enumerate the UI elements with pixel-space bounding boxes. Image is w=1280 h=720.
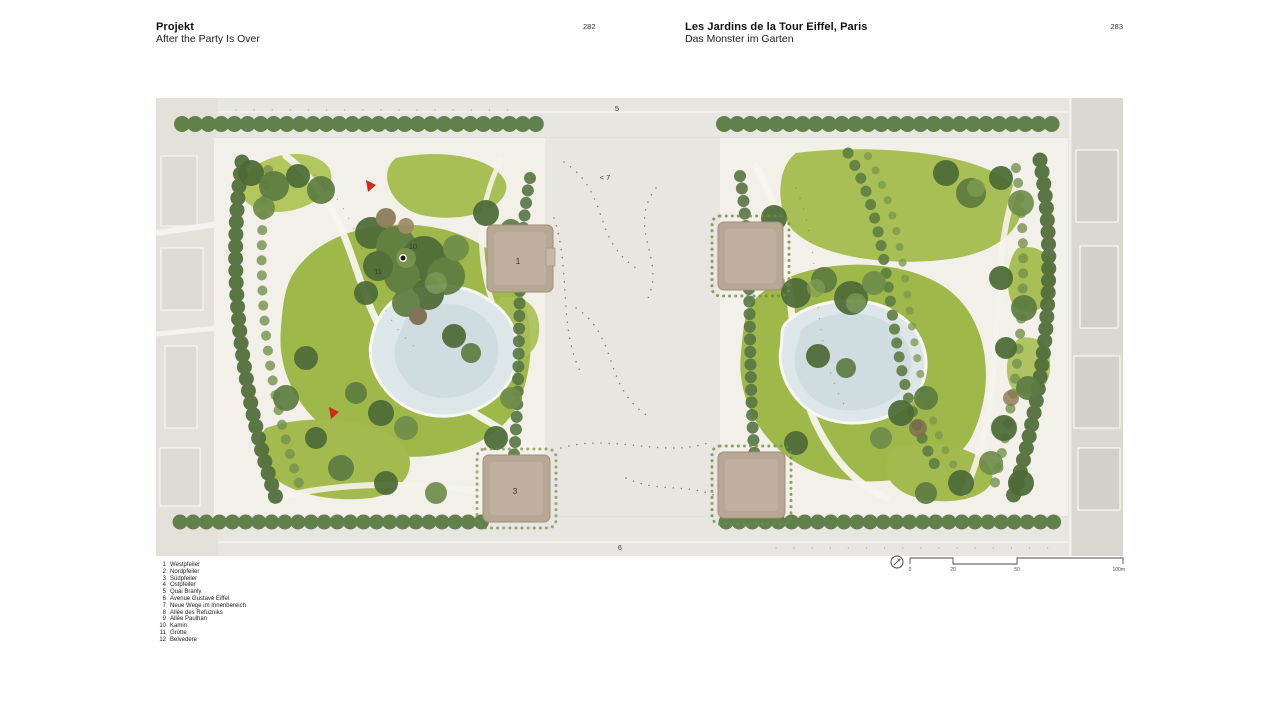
pier-west-label: 1 <box>516 256 521 266</box>
header-left: Projekt After the Party Is Over <box>156 21 260 45</box>
legend-item: 10Kamin <box>157 623 246 630</box>
legend-item: 5Quai Branly <box>157 589 246 596</box>
grotte-label: 11 <box>374 267 382 276</box>
scale-bar-line <box>910 558 1123 564</box>
plan-legend: 1Westpfeiler 2Nordpfeiler 3Südpfeiler 4O… <box>157 562 246 644</box>
scale-tick: 0 <box>909 567 912 573</box>
legend-item: 8Allée des Refuzniks <box>157 610 246 617</box>
right-page-title: Les Jardins de la Tour Eiffel, Paris <box>685 21 868 33</box>
scale-tick: 20 <box>950 567 956 573</box>
book-spread-page: Projekt After the Party Is Over 282 Les … <box>0 0 1280 720</box>
header-right: Les Jardins de la Tour Eiffel, Paris Das… <box>685 21 868 45</box>
pier-south-building: 3 <box>477 449 556 528</box>
pier-south-label: 3 <box>513 486 518 496</box>
left-page-subtitle: After the Party Is Over <box>156 33 260 45</box>
legend-item: 4Ostpfeiler <box>157 582 246 589</box>
left-page-number: 282 <box>583 22 596 31</box>
city-blocks-left <box>156 98 218 556</box>
legend-item: 2Nordpfeiler <box>157 569 246 576</box>
right-page-subtitle: Das Monster im Garten <box>685 33 868 45</box>
legend-item: 12Belvedere <box>157 637 246 644</box>
right-page-number: 283 <box>1099 22 1123 31</box>
pier-north-building <box>712 216 789 296</box>
kamin-dot-marker <box>400 255 406 261</box>
pier-east-building <box>712 446 791 524</box>
north-arrow-icon <box>891 556 903 568</box>
legend-item: 9Allée Paulhan <box>157 616 246 623</box>
site-plan-svg: 1 3 <box>156 98 1123 556</box>
legend-item: 11Grotte <box>157 630 246 637</box>
legend-item: 6Avenue Gustave Eiffel <box>157 596 246 603</box>
legend-item: 7Neue Wege im Innenbereich <box>157 603 246 610</box>
legend-item: 1Westpfeiler <box>157 562 246 569</box>
site-plan-figure: 1 3 <box>156 98 1123 556</box>
scale-tick: 100m <box>1112 567 1125 573</box>
pier-west-building: 1 <box>487 225 555 292</box>
legend-item: 3Südpfeiler <box>157 576 246 583</box>
left-page-title: Projekt <box>156 21 260 33</box>
scale-tick: 50 <box>1014 567 1020 573</box>
central-plaza <box>545 138 720 516</box>
neue-wege-label: < 7 <box>600 173 611 182</box>
kamin-label: 10 <box>409 242 417 251</box>
avenue-gustave-eiffel-label: 6 <box>618 543 622 552</box>
scale-bar: 0 20 50 100m <box>884 552 1128 574</box>
quai-branly-label: 5 <box>615 104 619 113</box>
city-blocks-right <box>1068 98 1123 556</box>
